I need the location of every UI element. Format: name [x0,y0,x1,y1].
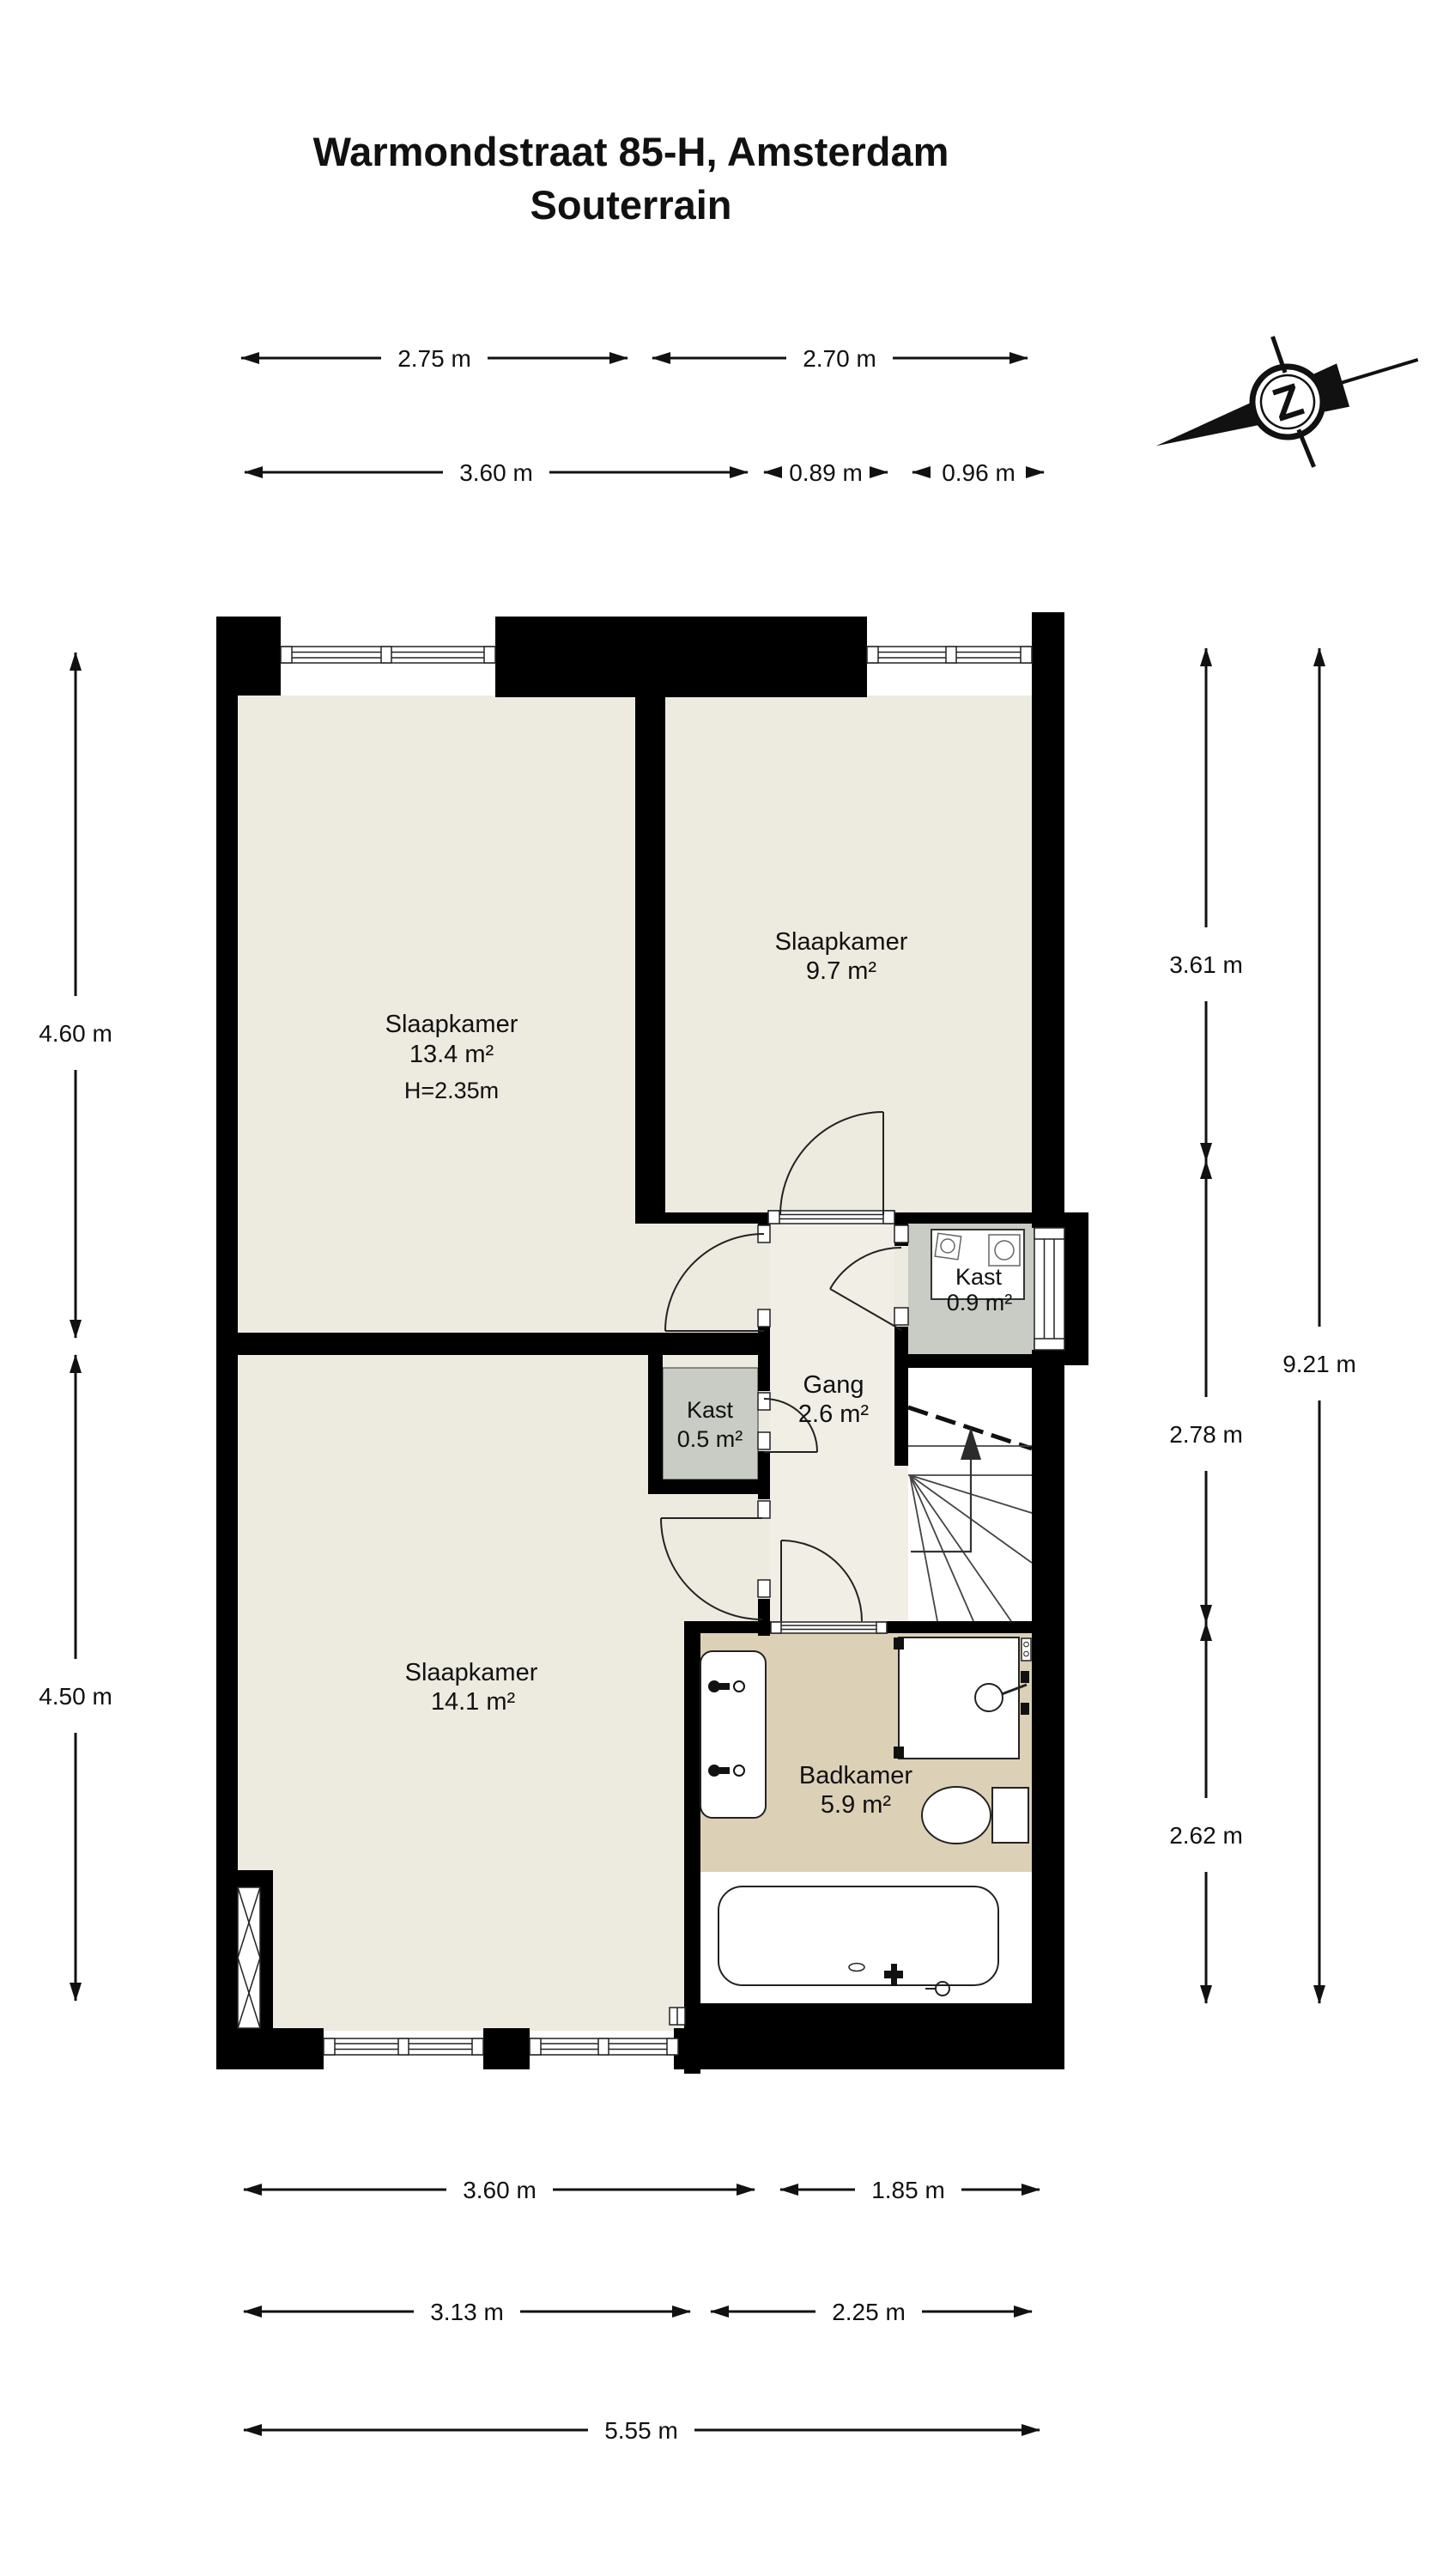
wall-bathroom-north-west [684,1621,771,1633]
wall-bottom-pier [483,2028,530,2069]
bedroom3-name: Slaapkamer [405,1659,538,1686]
wall-hall-top-east [886,1212,1032,1224]
wall-hall-east-2 [894,1327,908,1466]
wall-right-bump [1064,1212,1088,1365]
wall-between-bedrooms [635,697,665,1212]
window-bathroom-small [670,2008,685,2025]
dim-top-1: 2.75 m [397,345,471,372]
dim-top-5: 0.96 m [942,459,1016,486]
compass-icon: Z [1141,313,1434,494]
wall-bottom-bathroom [684,2003,1064,2069]
floorplan-drawing: Slaapkamer 13.4 m² H=2.35m Slaapkamer 9.… [0,0,1449,2576]
wall-hall-top-west [635,1212,768,1224]
wall-right-lower [1032,1365,1064,2069]
dim-left-2: 4.50 m [39,1683,112,1710]
bedroom3-area: 14.1 m² [431,1688,516,1716]
wall-bathroom-west [684,1621,700,2074]
window-bottom-right [530,2038,678,2055]
wall-left [216,617,238,2069]
window-left-fixed [238,1887,260,2028]
wall-closet-small-west [648,1355,663,1494]
dim-right-2: 2.78 m [1169,1421,1243,1448]
window-top-left [281,647,495,663]
dim-bottom-1: 3.60 m [463,2177,537,2203]
dim-bottom-3: 3.13 m [430,2299,504,2325]
wall-right-upper [1032,612,1064,1212]
wall-closet-small-south [648,1479,770,1494]
bedroom2-name: Slaapkamer [775,928,908,956]
window-right-closet [1034,1228,1064,1350]
hallway-name: Gang [803,1371,864,1399]
bathroom-area: 5.9 m² [821,1791,892,1819]
closet-small-name: Kast [687,1397,734,1423]
dim-bottom-5: 5.55 m [604,2417,678,2444]
bedroom1-name: Slaapkamer [385,1011,518,1038]
dim-top-4: 0.89 m [789,459,863,486]
window-bottom-left [324,2038,483,2055]
window-top-right [867,647,1032,663]
dim-bottom-2: 1.85 m [871,2177,945,2203]
dim-bottom-4: 2.25 m [832,2299,906,2325]
bedroom2-area: 9.7 m² [806,957,877,985]
wall-left-window-cap [238,1870,273,1887]
closet-small-area: 0.5 m² [677,1426,743,1452]
threshold-bathroom-door [771,1622,887,1633]
floorplan-page: Warmondstraat 85-H, Amsterdam Souterrain [0,0,1449,2576]
toilet [922,1787,1028,1844]
dim-left-1: 4.60 m [39,1020,112,1047]
dim-top-2: 2.70 m [803,345,876,372]
wall-bathroom-north-east [887,1621,1032,1633]
dim-right-3: 2.62 m [1169,1822,1243,1849]
washbasin [700,1651,766,1818]
dim-top-3: 3.60 m [459,459,533,486]
wall-bottom-left-corner [216,2028,324,2069]
wall-top-middle [495,617,867,697]
closet-large-name: Kast [955,1264,1003,1290]
dim-right-outer: 9.21 m [1282,1351,1356,1377]
wall-closet-large-south [894,1354,1032,1368]
bathroom-name: Badkamer [799,1762,913,1789]
hallway-floor-extension [894,1466,908,1621]
hallway-area: 2.6 m² [798,1400,870,1428]
dim-right-1: 3.61 m [1169,951,1243,978]
closet-small-floor [663,1368,758,1479]
closet-large-area: 0.9 m² [947,1290,1013,1315]
bedroom1-area: 13.4 m² [409,1041,494,1068]
threshold-bedroom2-door [768,1211,894,1224]
bedroom1-height-note: H=2.35m [404,1078,499,1103]
bathtub [718,1886,998,1996]
wall-bedroom-divider [238,1333,770,1355]
shower [894,1637,1031,1759]
